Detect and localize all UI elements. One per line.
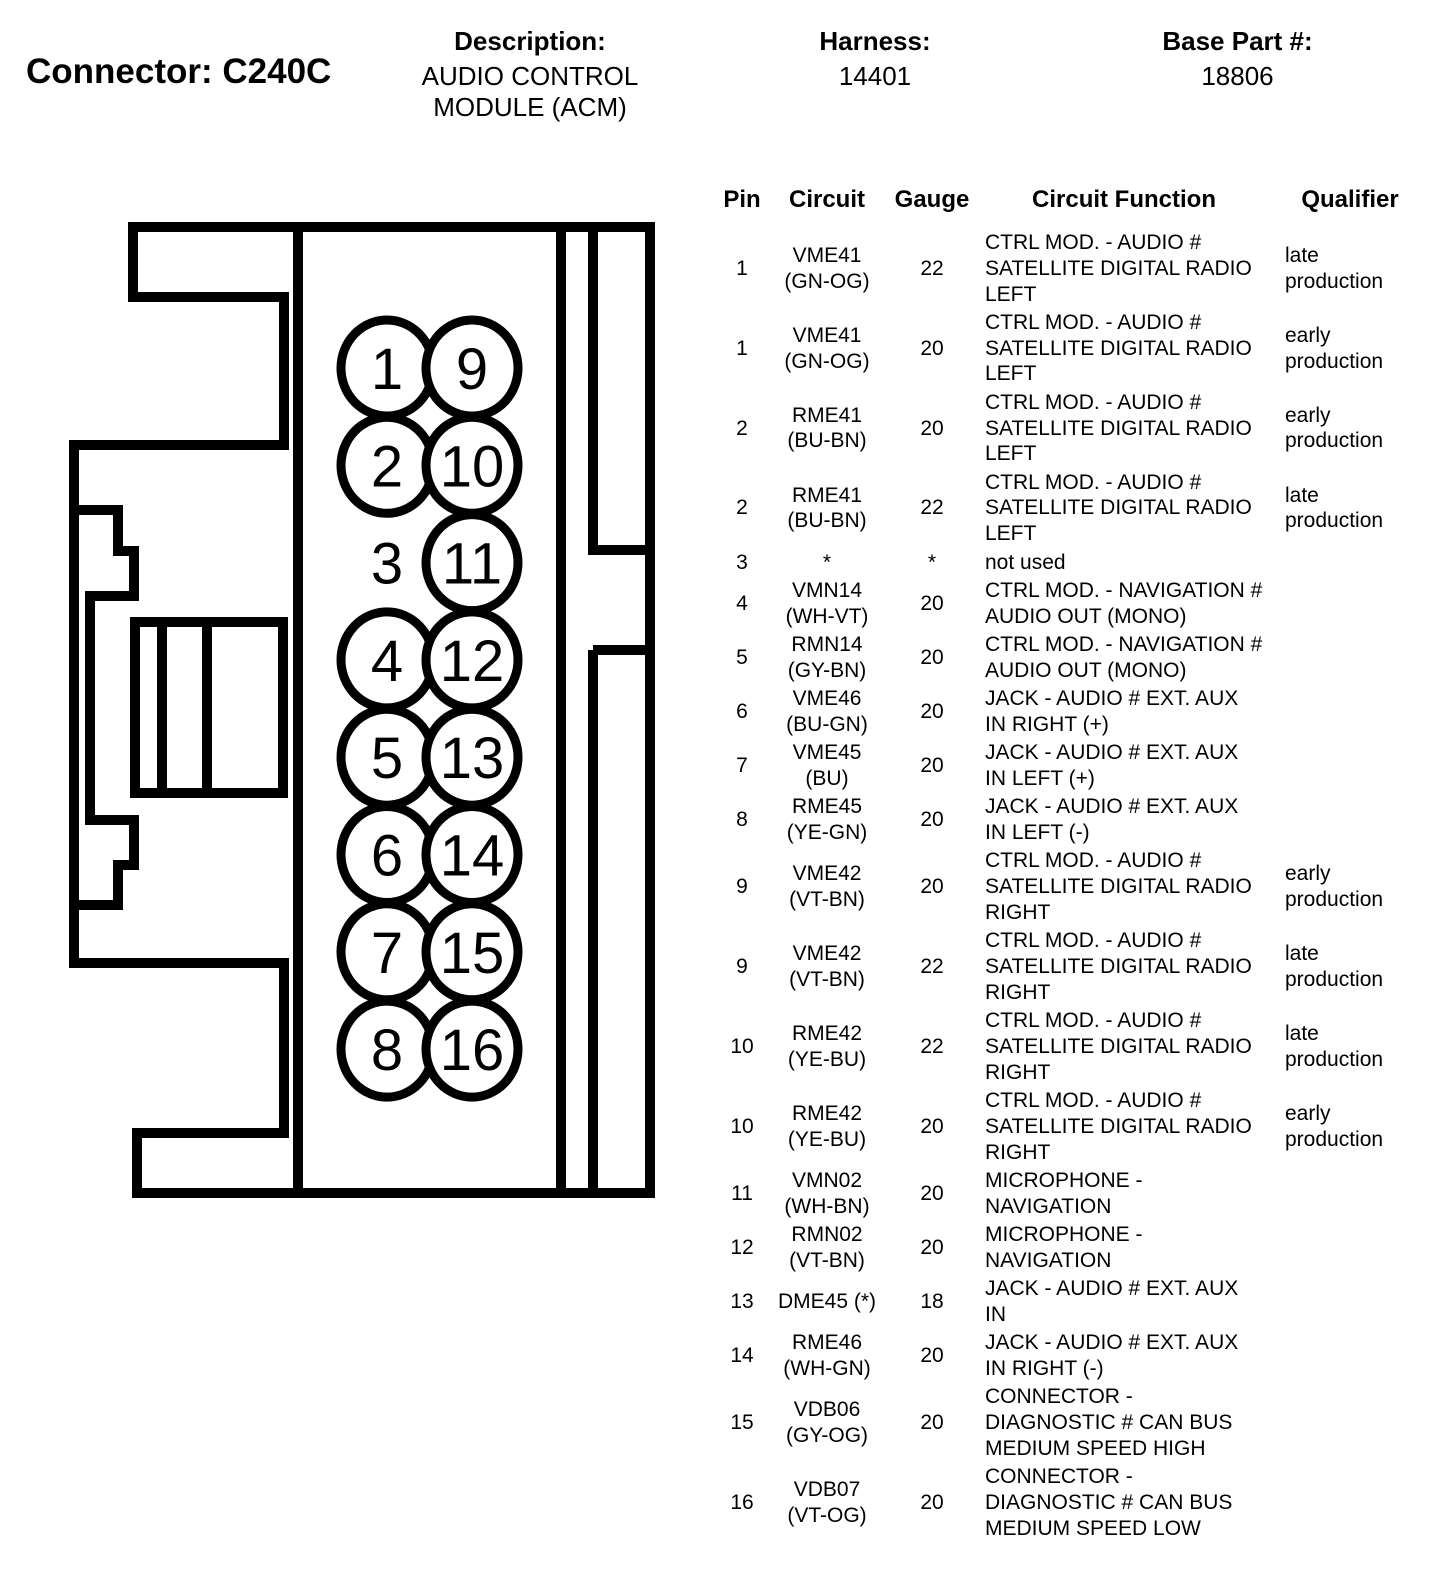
pin-cell: 9: [718, 874, 766, 900]
function-cell: JACK - AUDIO # EXT. AUX IN LEFT (+): [976, 740, 1272, 792]
table-row: 10RME42 (YE-BU)20CTRL MOD. - AUDIO # SAT…: [718, 1088, 1430, 1165]
table-row: 1VME41 (GN-OG)22CTRL MOD. - AUDIO # SATE…: [718, 230, 1430, 307]
gauge-cell: 22: [888, 495, 976, 521]
gauge-cell: 20: [888, 1490, 976, 1516]
base-part-block: Base Part #: 18806: [1130, 26, 1345, 92]
circuit-cell: RME45 (YE-GN): [766, 794, 888, 846]
table-row: 13DME45 (*)18JACK - AUDIO # EXT. AUX IN: [718, 1276, 1430, 1328]
column-header-qualifier: Qualifier: [1272, 186, 1428, 214]
circuit-cell: RMN14 (GY-BN): [766, 632, 888, 684]
pin-cell: 9: [718, 954, 766, 980]
pin-cell: 13: [718, 1289, 766, 1315]
table-row: 6VME46 (BU-GN)20JACK - AUDIO # EXT. AUX …: [718, 686, 1430, 738]
circuit-cell: *: [766, 550, 888, 576]
circuit-cell: VMN02 (WH-BN): [766, 1168, 888, 1220]
gauge-cell: 22: [888, 1034, 976, 1060]
circuit-cell: RMN02 (VT-BN): [766, 1222, 888, 1274]
table-row: 12RMN02 (VT-BN)20MICROPHONE - NAVIGATION: [718, 1222, 1430, 1274]
pin-cell: 7: [718, 753, 766, 779]
table-row: 3**not used: [718, 550, 1430, 576]
function-cell: MICROPHONE - NAVIGATION: [976, 1168, 1272, 1220]
gauge-cell: 22: [888, 256, 976, 282]
table-row: 5RMN14 (GY-BN)20CTRL MOD. - NAVIGATION #…: [718, 632, 1430, 684]
circuit-cell: VDB07 (VT-OG): [766, 1477, 888, 1529]
base-part-value: 18806: [1130, 61, 1345, 92]
pin-table: Pin Circuit Gauge Circuit Function Quali…: [718, 186, 1430, 1544]
table-row: 8RME45 (YE-GN)20JACK - AUDIO # EXT. AUX …: [718, 794, 1430, 846]
circuit-cell: RME42 (YE-BU): [766, 1101, 888, 1153]
gauge-cell: 20: [888, 1410, 976, 1436]
pin-table-rows: 1VME41 (GN-OG)22CTRL MOD. - AUDIO # SATE…: [718, 230, 1430, 1542]
qualifier-cell: early production: [1272, 403, 1428, 455]
table-row: 2RME41 (BU-BN)20CTRL MOD. - AUDIO # SATE…: [718, 390, 1430, 467]
pin-number: 2: [371, 434, 403, 499]
harness-value: 14401: [770, 61, 980, 92]
function-cell: CTRL MOD. - AUDIO # SATELLITE DIGITAL RA…: [976, 390, 1272, 467]
column-header-function: Circuit Function: [976, 186, 1272, 214]
pin-cell: 2: [718, 416, 766, 442]
circuit-cell: RME41 (BU-BN): [766, 403, 888, 455]
gauge-cell: 20: [888, 1181, 976, 1207]
qualifier-cell: late production: [1272, 483, 1428, 535]
qualifier-cell: late production: [1272, 243, 1428, 295]
harness-label: Harness:: [770, 26, 980, 56]
qualifier-cell: early production: [1272, 861, 1428, 913]
function-cell: CONNECTOR - DIAGNOSTIC # CAN BUS MEDIUM …: [976, 1384, 1272, 1461]
circuit-cell: DME45 (*): [766, 1289, 888, 1315]
gauge-cell: 20: [888, 753, 976, 779]
circuit-cell: VME41 (GN-OG): [766, 243, 888, 295]
qualifier-cell: late production: [1272, 941, 1428, 993]
gauge-cell: 20: [888, 416, 976, 442]
circuit-cell: VME45 (BU): [766, 740, 888, 792]
function-cell: JACK - AUDIO # EXT. AUX IN RIGHT (-): [976, 1330, 1272, 1382]
table-row: 16VDB07 (VT-OG)20CONNECTOR - DIAGNOSTIC …: [718, 1464, 1430, 1541]
pin-number: 8: [371, 1018, 403, 1083]
gauge-cell: 18: [888, 1289, 976, 1315]
pin-cell: 10: [718, 1114, 766, 1140]
function-cell: CTRL MOD. - AUDIO # SATELLITE DIGITAL RA…: [976, 928, 1272, 1005]
pin-number: 3: [371, 532, 403, 597]
circuit-cell: RME46 (WH-GN): [766, 1330, 888, 1382]
pin-number: 4: [371, 629, 403, 694]
circuit-cell: VME42 (VT-BN): [766, 861, 888, 913]
pin-number: 13: [440, 726, 505, 791]
function-cell: not used: [976, 550, 1272, 576]
pin-field: 12345678910111213141516: [341, 320, 518, 1097]
table-row: 9VME42 (VT-BN)20CTRL MOD. - AUDIO # SATE…: [718, 848, 1430, 925]
column-header-gauge: Gauge: [888, 186, 976, 214]
qualifier-cell: early production: [1272, 323, 1428, 375]
pin-cell: 3: [718, 550, 766, 576]
function-cell: JACK - AUDIO # EXT. AUX IN LEFT (-): [976, 794, 1272, 846]
base-part-label: Base Part #:: [1130, 26, 1345, 56]
table-row: 11VMN02 (WH-BN)20MICROPHONE - NAVIGATION: [718, 1168, 1430, 1220]
connector-left-latch-detail: [74, 510, 134, 905]
function-cell: JACK - AUDIO # EXT. AUX IN RIGHT (+): [976, 686, 1272, 738]
circuit-cell: VME41 (GN-OG): [766, 323, 888, 375]
gauge-cell: 20: [888, 1235, 976, 1261]
pin-number: 15: [440, 921, 505, 986]
gauge-cell: 20: [888, 645, 976, 671]
table-row: 14RME46 (WH-GN)20JACK - AUDIO # EXT. AUX…: [718, 1330, 1430, 1382]
pin-cell: 5: [718, 645, 766, 671]
pin-cell: 8: [718, 807, 766, 833]
circuit-cell: VDB06 (GY-OG): [766, 1397, 888, 1449]
pin-number: 16: [440, 1018, 505, 1083]
function-cell: JACK - AUDIO # EXT. AUX IN: [976, 1276, 1272, 1328]
pin-cell: 6: [718, 699, 766, 725]
pin-cell: 16: [718, 1490, 766, 1516]
circuit-cell: RME41 (BU-BN): [766, 483, 888, 535]
function-cell: CTRL MOD. - NAVIGATION # AUDIO OUT (MONO…: [976, 632, 1272, 684]
function-cell: CTRL MOD. - AUDIO # SATELLITE DIGITAL RA…: [976, 1088, 1272, 1165]
gauge-cell: *: [888, 550, 976, 576]
function-cell: CTRL MOD. - AUDIO # SATELLITE DIGITAL RA…: [976, 310, 1272, 387]
pin-number: 14: [440, 824, 505, 889]
pin-number: 1: [371, 337, 403, 402]
pin-cell: 10: [718, 1034, 766, 1060]
function-cell: CONNECTOR - DIAGNOSTIC # CAN BUS MEDIUM …: [976, 1464, 1272, 1541]
gauge-cell: 20: [888, 336, 976, 362]
gauge-cell: 20: [888, 874, 976, 900]
pin-number: 11: [442, 532, 502, 597]
pinout-sheet: Connector: C240C Description: AUDIO CONT…: [0, 0, 1440, 1570]
gauge-cell: 20: [888, 1343, 976, 1369]
table-row: 2RME41 (BU-BN)22CTRL MOD. - AUDIO # SATE…: [718, 470, 1430, 547]
pin-number: 10: [440, 434, 505, 499]
qualifier-cell: early production: [1272, 1101, 1428, 1153]
pin-number: 6: [371, 824, 403, 889]
gauge-cell: 20: [888, 807, 976, 833]
pin-cell: 11: [718, 1181, 766, 1207]
gauge-cell: 20: [888, 1114, 976, 1140]
pin-number: 9: [456, 337, 488, 402]
qualifier-cell: late production: [1272, 1021, 1428, 1073]
circuit-cell: VME46 (BU-GN): [766, 686, 888, 738]
function-cell: CTRL MOD. - NAVIGATION # AUDIO OUT (MONO…: [976, 578, 1272, 630]
table-row: 9VME42 (VT-BN)22CTRL MOD. - AUDIO # SATE…: [718, 928, 1430, 1005]
table-row: 15VDB06 (GY-OG)20CONNECTOR - DIAGNOSTIC …: [718, 1384, 1430, 1461]
function-cell: CTRL MOD. - AUDIO # SATELLITE DIGITAL RA…: [976, 470, 1272, 547]
pin-number: 12: [440, 629, 505, 694]
column-header-circuit: Circuit: [766, 186, 888, 214]
function-cell: CTRL MOD. - AUDIO # SATELLITE DIGITAL RA…: [976, 848, 1272, 925]
gauge-cell: 20: [888, 699, 976, 725]
function-cell: MICROPHONE - NAVIGATION: [976, 1222, 1272, 1274]
pin-cell: 15: [718, 1410, 766, 1436]
circuit-cell: VMN14 (WH-VT): [766, 578, 888, 630]
gauge-cell: 20: [888, 591, 976, 617]
function-cell: CTRL MOD. - AUDIO # SATELLITE DIGITAL RA…: [976, 230, 1272, 307]
pin-cell: 2: [718, 495, 766, 521]
pin-number: 7: [371, 921, 403, 986]
function-cell: CTRL MOD. - AUDIO # SATELLITE DIGITAL RA…: [976, 1008, 1272, 1085]
harness-block: Harness: 14401: [770, 26, 980, 92]
circuit-cell: VME42 (VT-BN): [766, 941, 888, 993]
pin-number: 5: [371, 726, 403, 791]
pin-cell: 1: [718, 256, 766, 282]
pin-table-header: Pin Circuit Gauge Circuit Function Quali…: [718, 186, 1430, 214]
gauge-cell: 22: [888, 954, 976, 980]
table-row: 7VME45 (BU)20JACK - AUDIO # EXT. AUX IN …: [718, 740, 1430, 792]
connector-diagram: 12345678910111213141516: [0, 0, 700, 1300]
pin-cell: 1: [718, 336, 766, 362]
connector-key-channel: [593, 227, 650, 1193]
table-row: 4VMN14 (WH-VT)20CTRL MOD. - NAVIGATION #…: [718, 578, 1430, 630]
pin-cell: 4: [718, 591, 766, 617]
pin-cell: 12: [718, 1235, 766, 1261]
column-header-pin: Pin: [718, 186, 766, 214]
pin-cell: 14: [718, 1343, 766, 1369]
circuit-cell: RME42 (YE-BU): [766, 1021, 888, 1073]
table-row: 10RME42 (YE-BU)22CTRL MOD. - AUDIO # SAT…: [718, 1008, 1430, 1085]
table-row: 1VME41 (GN-OG)20CTRL MOD. - AUDIO # SATE…: [718, 310, 1430, 387]
